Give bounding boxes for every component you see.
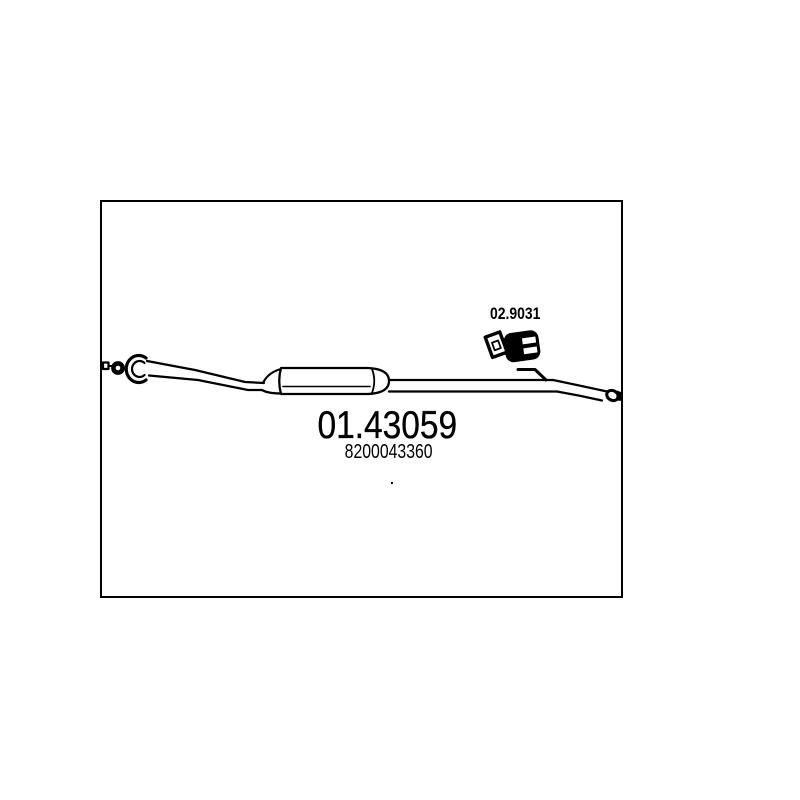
rear-pipe: [389, 380, 557, 392]
front-pipe: [147, 361, 264, 390]
main-part-number-row: 01.43059: [102, 407, 621, 446]
clamp-part-number: 02.9031: [490, 305, 540, 322]
inlet-flange-icon: [126, 356, 146, 383]
rubber-hanger-icon: [485, 329, 541, 363]
main-part-number: 01.43059: [318, 407, 458, 446]
exhaust-part-drawing: [102, 202, 621, 596]
inlet-ring-icon: [113, 363, 122, 372]
diagram-frame: 02.9031 01.43059 8200043360 .: [100, 200, 623, 598]
product-image-canvas: 02.9031 01.43059 8200043360 .: [0, 0, 800, 800]
center-silencer-body: [262, 368, 389, 394]
oe-number-row: 8200043360: [102, 442, 621, 463]
hanger-bracket-icon: [485, 332, 507, 358]
tail-pipe: [553, 380, 607, 401]
pipe-hook-icon: [518, 370, 546, 381]
stray-dot: .: [390, 472, 394, 486]
oe-reference-number: 8200043360: [345, 442, 433, 462]
tail-end-cap-icon: [605, 388, 621, 402]
